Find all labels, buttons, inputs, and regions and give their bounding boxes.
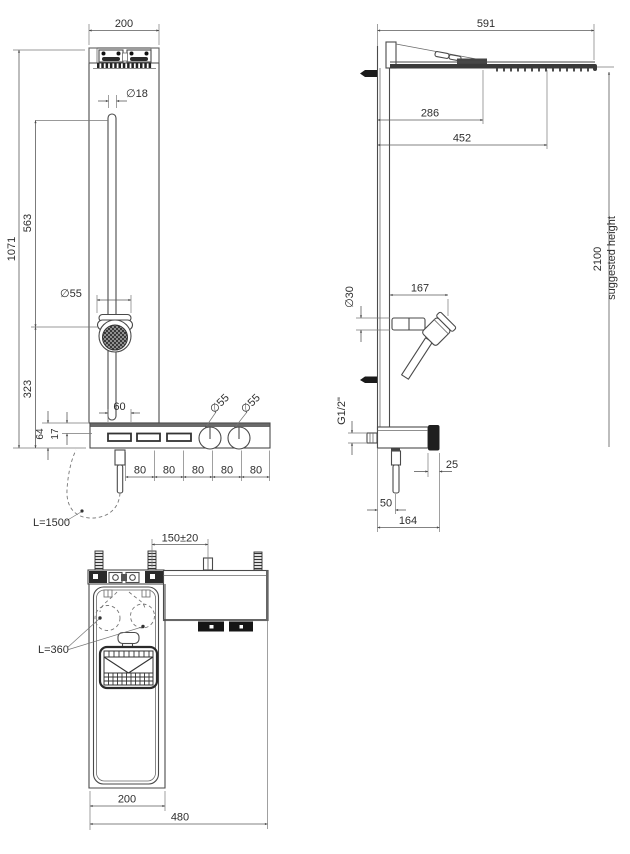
wall-bracket-lower [360, 377, 377, 384]
dim-head-depth-1: 286 [421, 108, 439, 120]
dim-slot-width: 60 [113, 401, 125, 413]
overhead-shower-plate [390, 62, 597, 72]
wall-bracket-upper [360, 70, 377, 77]
front-view: 200 1071 563 323 ∅18 ∅55 [6, 18, 270, 529]
side-dimensions: 591 286 452 2100 suggested height ∅30 16… [336, 18, 618, 532]
dim-knob-protrusion: 25 [446, 459, 458, 471]
hand-shower-side [392, 312, 456, 380]
hand-shower-front [98, 315, 133, 353]
dim-overall-height: 1071 [6, 237, 18, 261]
basket-plan [100, 647, 157, 688]
dim-pitch-5: 80 [250, 465, 262, 477]
dim-head-depth-2: 452 [453, 133, 471, 145]
dim-holder-diameter: ∅30 [344, 286, 356, 308]
dim-suggested-height-value: 2100 [592, 247, 604, 271]
dim-panel-width: 200 [118, 794, 136, 806]
shower-column-drawing: 200 1071 563 323 ∅18 ∅55 [0, 0, 630, 854]
shelf-front [90, 423, 270, 449]
dim-suggested-height-label: suggested height [606, 216, 618, 300]
side-panel-body [360, 42, 597, 448]
dim-right-knob-diameter: ∅55 [239, 392, 263, 416]
side-view: 591 286 452 2100 suggested height ∅30 16… [336, 18, 618, 532]
dim-rail-diameter: ∅18 [126, 88, 148, 100]
hose-outlet-front [66, 450, 125, 521]
plan-view: 150±20 L=360 200 480 [38, 533, 268, 831]
dim-shelf-inset: 17 [50, 428, 61, 440]
slide-rail [108, 114, 116, 420]
dim-left-knob-diameter: ∅55 [208, 392, 232, 416]
dim-handshower-diameter: ∅55 [60, 288, 82, 300]
shelf-side-section [367, 425, 440, 493]
shelf-plan [164, 571, 269, 632]
inlet-fitting [367, 433, 377, 443]
dim-fixing-spacing: 150±20 [162, 533, 199, 545]
dim-plan-hose-length: L=360 [38, 644, 69, 656]
dim-handshower-to-base: 323 [22, 380, 34, 398]
dim-shelf-thickness: 64 [35, 428, 46, 440]
holder-plan [118, 633, 139, 644]
dim-overall-width: 480 [171, 812, 189, 824]
dim-front-top-width: 200 [115, 18, 133, 30]
wall-bracket-bar [88, 570, 164, 584]
dim-rail-to-handshower: 563 [22, 214, 34, 232]
dim-inlet-thread: G1/2" [336, 397, 348, 425]
mounting-bolts [95, 551, 262, 570]
right-knob [228, 427, 250, 449]
left-knob [199, 427, 221, 449]
dim-overall-depth: 591 [477, 18, 495, 30]
dim-pitch-4: 80 [221, 465, 233, 477]
dim-pitch-3: 80 [192, 465, 204, 477]
knob-side-profile [428, 425, 440, 451]
dim-hose-length: L=1500 [33, 517, 70, 529]
dim-hose-offset: 50 [380, 498, 392, 510]
technical-drawing-page: 200 1071 563 323 ∅18 ∅55 [0, 0, 630, 854]
dim-pitch-1: 80 [134, 465, 146, 477]
dim-handshower-reach: 167 [411, 283, 429, 295]
dim-shelf-depth: 164 [399, 515, 417, 527]
column-plan [89, 584, 165, 788]
dim-pitch-2: 80 [163, 465, 175, 477]
nozzle-row [497, 69, 588, 72]
front-panel-body [89, 48, 159, 423]
